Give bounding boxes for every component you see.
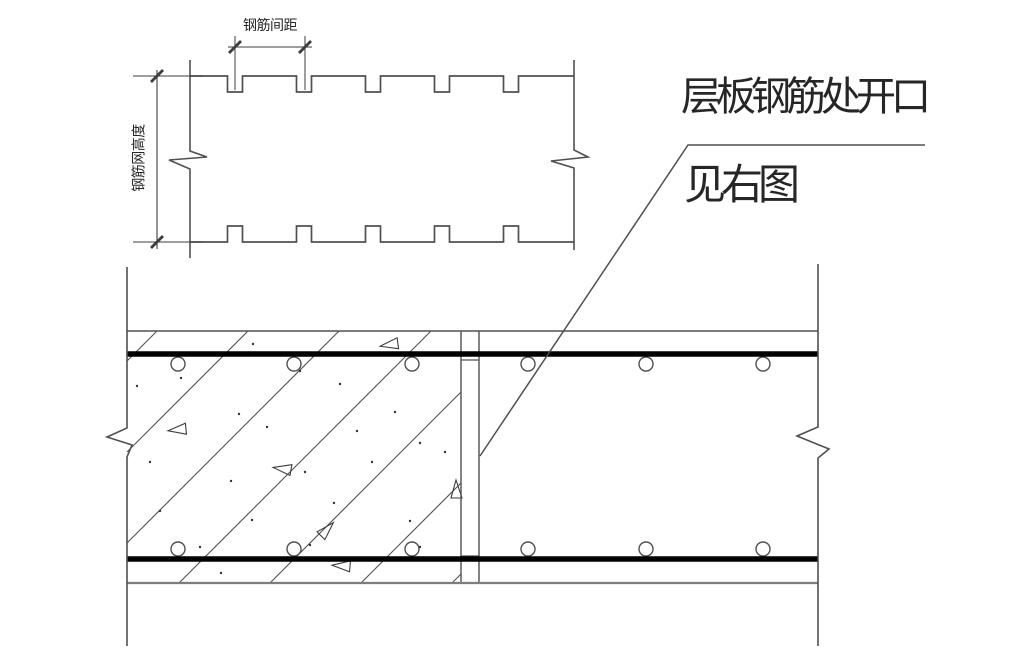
- rebar-spacing-label: 钢筋间距: [243, 18, 297, 33]
- cad-detail-page: 钢筋间距 钢筋网高度 层板钢筋处开口 见右图: [0, 0, 1021, 660]
- callout-text-line2: 见右图: [684, 163, 795, 207]
- mesh-height-label: 钢筋网高度: [132, 124, 147, 192]
- callout-text-line1: 层板钢筋处开口: [681, 76, 926, 118]
